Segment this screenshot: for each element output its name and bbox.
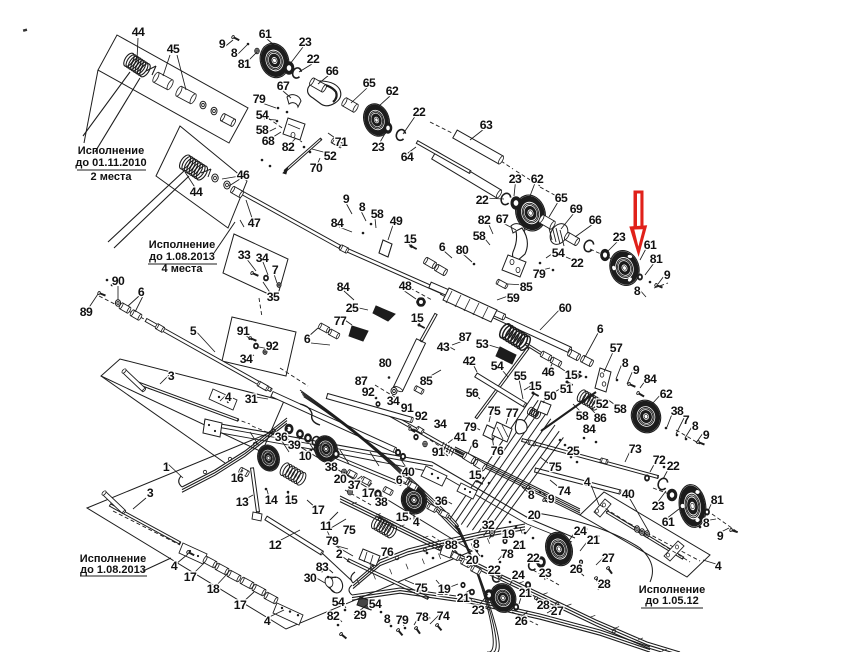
svg-text:54: 54 (552, 246, 565, 260)
svg-text:22: 22 (476, 193, 489, 207)
svg-text:23: 23 (539, 566, 552, 580)
svg-text:9: 9 (633, 363, 640, 377)
svg-text:17: 17 (234, 598, 247, 612)
svg-text:79: 79 (326, 534, 339, 548)
svg-text:6: 6 (472, 437, 479, 451)
svg-text:24: 24 (574, 524, 587, 538)
svg-text:23: 23 (299, 35, 312, 49)
svg-text:77: 77 (334, 314, 347, 328)
svg-text:71: 71 (335, 135, 348, 149)
svg-text:49: 49 (390, 214, 403, 228)
svg-text:58: 58 (371, 207, 384, 221)
svg-text:74: 74 (558, 484, 571, 498)
svg-text:48: 48 (399, 279, 412, 293)
svg-text:34: 34 (387, 394, 400, 408)
svg-text:7: 7 (683, 413, 690, 427)
svg-text:40: 40 (622, 487, 635, 501)
svg-text:4: 4 (413, 515, 420, 529)
svg-text:34: 34 (240, 352, 253, 366)
svg-text:9: 9 (664, 268, 671, 282)
svg-text:81: 81 (238, 57, 251, 71)
svg-text:4: 4 (225, 390, 232, 404)
svg-text:74: 74 (437, 609, 450, 623)
svg-text:43: 43 (437, 340, 450, 354)
svg-text:72: 72 (653, 453, 666, 467)
svg-text:79: 79 (464, 420, 477, 434)
svg-text:8: 8 (703, 516, 710, 530)
svg-text:79: 79 (396, 613, 409, 627)
svg-text:35: 35 (267, 290, 280, 304)
svg-text:67: 67 (277, 79, 290, 93)
svg-text:12: 12 (269, 538, 282, 552)
svg-text:28: 28 (537, 598, 550, 612)
svg-text:78: 78 (501, 547, 514, 561)
svg-text:56: 56 (466, 386, 479, 400)
svg-text:20: 20 (528, 508, 541, 522)
svg-text:23: 23 (613, 230, 626, 244)
svg-text:80: 80 (456, 243, 469, 257)
svg-text:62: 62 (531, 172, 544, 186)
svg-text:78: 78 (416, 610, 429, 624)
svg-text:81: 81 (650, 252, 663, 266)
svg-text:75: 75 (343, 523, 356, 537)
svg-text:6: 6 (138, 285, 145, 299)
svg-text:76: 76 (491, 444, 504, 458)
svg-text:73: 73 (629, 442, 642, 456)
svg-text:9: 9 (343, 192, 350, 206)
svg-text:10: 10 (299, 449, 312, 463)
svg-text:65: 65 (555, 191, 568, 205)
svg-text:4: 4 (584, 475, 591, 489)
svg-text:6: 6 (597, 322, 604, 336)
svg-text:57: 57 (610, 341, 623, 355)
svg-text:79: 79 (253, 92, 266, 106)
svg-text:8: 8 (473, 537, 480, 551)
svg-text:61: 61 (662, 515, 675, 529)
svg-text:26: 26 (515, 614, 528, 628)
svg-text:34: 34 (256, 251, 269, 265)
svg-text:81: 81 (711, 493, 724, 507)
svg-text:Исполнение: Исполнение (78, 145, 144, 157)
svg-text:1: 1 (163, 460, 170, 474)
svg-text:3: 3 (147, 486, 154, 500)
svg-text:11: 11 (320, 519, 333, 533)
svg-text:85: 85 (420, 374, 433, 388)
svg-text:82: 82 (478, 213, 491, 227)
svg-text:2: 2 (336, 547, 343, 561)
svg-text:17: 17 (184, 570, 197, 584)
svg-text:36: 36 (435, 494, 448, 508)
svg-text:22: 22 (571, 256, 584, 270)
svg-text:8: 8 (384, 612, 391, 626)
svg-text:23: 23 (472, 603, 485, 617)
svg-text:до 1.05.12: до 1.05.12 (645, 595, 698, 607)
svg-text:Исполнение: Исполнение (149, 239, 215, 251)
svg-text:32: 32 (482, 518, 495, 532)
svg-text:25: 25 (346, 301, 359, 315)
svg-text:61: 61 (644, 238, 657, 252)
svg-text:47: 47 (248, 216, 261, 230)
svg-text:17: 17 (312, 503, 325, 517)
svg-text:21: 21 (457, 591, 470, 605)
svg-text:55: 55 (514, 369, 527, 383)
svg-text:75: 75 (488, 404, 501, 418)
svg-text:8: 8 (634, 284, 641, 298)
svg-text:92: 92 (266, 339, 279, 353)
svg-text:68: 68 (262, 134, 275, 148)
svg-text:4: 4 (171, 559, 178, 573)
svg-text:4: 4 (715, 559, 722, 573)
svg-text:66: 66 (589, 213, 602, 227)
svg-text:37: 37 (348, 478, 361, 492)
svg-text:86: 86 (594, 411, 607, 425)
svg-text:18: 18 (207, 582, 220, 596)
svg-text:21: 21 (519, 586, 532, 600)
svg-text:25: 25 (567, 444, 580, 458)
svg-text:4: 4 (264, 614, 271, 628)
svg-text:22: 22 (488, 563, 501, 577)
svg-text:92: 92 (362, 385, 375, 399)
svg-text:75: 75 (549, 460, 562, 474)
svg-text:29: 29 (354, 608, 367, 622)
svg-text:66: 66 (326, 64, 339, 78)
svg-text:85: 85 (520, 280, 533, 294)
svg-text:46: 46 (237, 168, 250, 182)
svg-text:21: 21 (513, 538, 526, 552)
svg-text:13: 13 (236, 495, 249, 509)
svg-text:54: 54 (369, 597, 382, 611)
svg-text:15: 15 (404, 232, 417, 246)
svg-text:82: 82 (327, 609, 340, 623)
svg-text:50: 50 (544, 389, 557, 403)
svg-text:14: 14 (265, 493, 278, 507)
svg-text:8: 8 (528, 488, 535, 502)
svg-text:27: 27 (551, 604, 564, 618)
svg-text:23: 23 (372, 140, 385, 154)
svg-text:22: 22 (667, 459, 680, 473)
svg-text:15: 15 (285, 493, 298, 507)
svg-text:6: 6 (304, 332, 311, 346)
svg-text:89: 89 (80, 305, 93, 319)
svg-text:62: 62 (660, 387, 673, 401)
svg-text:91: 91 (401, 401, 414, 415)
svg-text:76: 76 (381, 545, 394, 559)
svg-text:до 1.08.2013: до 1.08.2013 (149, 251, 215, 263)
svg-text:16: 16 (231, 471, 244, 485)
svg-text:21: 21 (587, 533, 600, 547)
svg-text:30: 30 (304, 571, 317, 585)
svg-text:2 места: 2 места (91, 171, 133, 183)
svg-text:84: 84 (331, 216, 344, 230)
svg-text:22: 22 (527, 551, 540, 565)
svg-text:84: 84 (583, 422, 596, 436)
svg-text:9: 9 (717, 529, 724, 543)
svg-text:23: 23 (509, 172, 522, 186)
svg-text:59: 59 (507, 291, 520, 305)
svg-text:52: 52 (596, 397, 609, 411)
svg-text:38: 38 (375, 495, 388, 509)
svg-text:15: 15 (469, 468, 482, 482)
svg-text:26: 26 (570, 562, 583, 576)
svg-text:9: 9 (219, 37, 226, 51)
svg-text:77: 77 (506, 406, 519, 420)
svg-text:83: 83 (316, 560, 329, 574)
svg-text:84: 84 (337, 280, 350, 294)
svg-text:15: 15 (565, 368, 578, 382)
svg-text:63: 63 (480, 118, 493, 132)
svg-text:42: 42 (463, 354, 476, 368)
svg-text:58: 58 (576, 409, 589, 423)
svg-text:51: 51 (560, 382, 573, 396)
svg-text:46: 46 (542, 365, 555, 379)
svg-text:22: 22 (307, 52, 320, 66)
svg-text:61: 61 (259, 27, 272, 41)
svg-text:28: 28 (598, 577, 611, 591)
svg-text:67: 67 (496, 212, 509, 226)
svg-text:8: 8 (359, 200, 366, 214)
svg-text:20: 20 (334, 472, 347, 486)
svg-text:31: 31 (245, 392, 258, 406)
svg-text:8: 8 (692, 419, 699, 433)
svg-text:80: 80 (379, 356, 392, 370)
svg-text:65: 65 (363, 76, 376, 90)
svg-text:6: 6 (439, 240, 446, 254)
svg-text:54: 54 (332, 595, 345, 609)
svg-text:45: 45 (167, 42, 180, 56)
svg-text:82: 82 (282, 140, 295, 154)
svg-text:91: 91 (237, 324, 250, 338)
svg-text:5: 5 (190, 324, 197, 338)
svg-text:34: 34 (434, 417, 447, 431)
svg-text:53: 53 (476, 337, 489, 351)
svg-text:69: 69 (570, 202, 583, 216)
svg-text:до 1.08.2013: до 1.08.2013 (80, 564, 146, 576)
svg-text:60: 60 (559, 301, 572, 315)
svg-text:40: 40 (402, 465, 415, 479)
svg-text:36: 36 (275, 430, 288, 444)
svg-text:87: 87 (459, 330, 472, 344)
svg-text:90: 90 (112, 274, 125, 288)
svg-text:8: 8 (622, 356, 629, 370)
svg-text:19: 19 (438, 582, 451, 596)
svg-text:24: 24 (512, 568, 525, 582)
svg-text:58: 58 (473, 229, 486, 243)
svg-text:15: 15 (396, 510, 409, 524)
svg-text:7: 7 (272, 263, 279, 277)
svg-text:9: 9 (703, 428, 710, 442)
svg-text:44: 44 (132, 25, 145, 39)
svg-text:91: 91 (432, 445, 445, 459)
svg-text:27: 27 (602, 551, 615, 565)
svg-text:20: 20 (466, 553, 479, 567)
svg-text:4 места: 4 места (162, 263, 204, 275)
svg-text:64: 64 (401, 150, 414, 164)
svg-text:15: 15 (529, 379, 542, 393)
svg-text:23: 23 (652, 499, 665, 513)
svg-text:33: 33 (238, 248, 251, 262)
svg-text:92: 92 (415, 409, 428, 423)
svg-text:44: 44 (190, 185, 203, 199)
svg-text:70: 70 (310, 161, 323, 175)
svg-text:9: 9 (548, 492, 555, 506)
svg-text:54: 54 (491, 359, 504, 373)
svg-text:88: 88 (445, 538, 458, 552)
svg-text:до 01.11.2010: до 01.11.2010 (75, 157, 146, 169)
svg-text:52: 52 (324, 149, 337, 163)
svg-text:3: 3 (168, 369, 175, 383)
svg-text:54: 54 (256, 108, 269, 122)
svg-text:84: 84 (644, 372, 657, 386)
svg-text:22: 22 (413, 105, 426, 119)
svg-text:15: 15 (411, 311, 424, 325)
svg-text:75: 75 (415, 581, 428, 595)
svg-text:17: 17 (362, 486, 375, 500)
svg-text:62: 62 (386, 84, 399, 98)
svg-text:79: 79 (533, 267, 546, 281)
svg-text:58: 58 (614, 402, 627, 416)
